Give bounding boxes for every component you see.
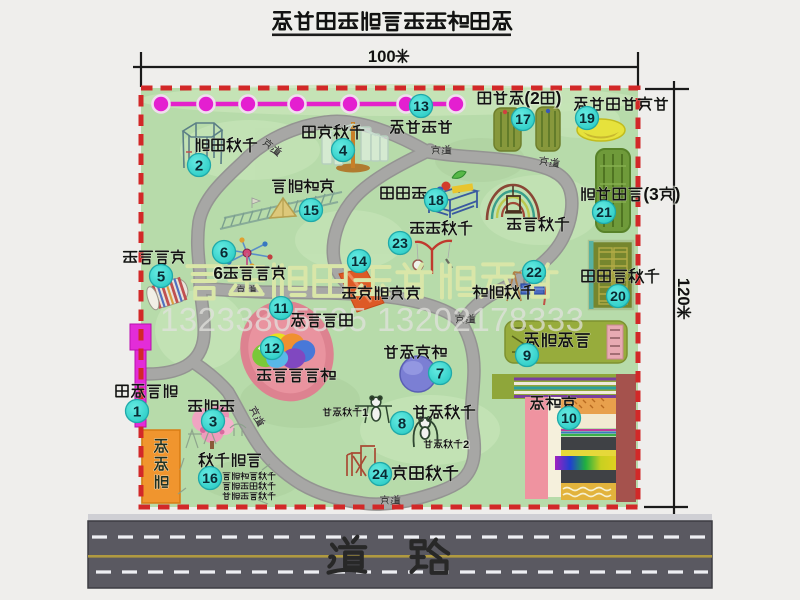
svg-text:6: 6 <box>220 244 228 261</box>
svg-text:12: 12 <box>264 341 280 357</box>
svg-text:(3: (3 <box>643 184 658 204</box>
svg-text:(2: (2 <box>524 88 539 108</box>
svg-text:13233805535 13202178333: 13233805535 13202178333 <box>160 301 584 338</box>
svg-text:2: 2 <box>463 439 469 451</box>
svg-text:20: 20 <box>610 289 626 305</box>
svg-text:6: 6 <box>213 263 223 283</box>
svg-text:4: 4 <box>339 142 348 159</box>
svg-text:): ) <box>675 184 681 204</box>
svg-text:17: 17 <box>515 112 531 128</box>
svg-text:19: 19 <box>579 111 595 127</box>
svg-text:23: 23 <box>392 236 408 252</box>
svg-text:22: 22 <box>526 265 542 281</box>
svg-text:120: 120 <box>674 278 693 306</box>
svg-text:7: 7 <box>436 365 444 382</box>
svg-text:8: 8 <box>398 415 406 432</box>
svg-text:5: 5 <box>157 268 165 285</box>
svg-text:13: 13 <box>413 99 429 115</box>
svg-text:24: 24 <box>372 467 388 483</box>
svg-text:3: 3 <box>209 413 217 430</box>
svg-text:9: 9 <box>523 347 531 364</box>
svg-text:11: 11 <box>274 301 289 317</box>
svg-text:14: 14 <box>351 254 367 270</box>
svg-text:1: 1 <box>362 407 368 419</box>
svg-text:16: 16 <box>202 471 218 487</box>
svg-text:1: 1 <box>133 403 141 420</box>
svg-text:2: 2 <box>195 157 203 174</box>
svg-text:100: 100 <box>368 47 396 66</box>
svg-text:15: 15 <box>303 203 319 219</box>
svg-text:): ) <box>556 88 562 108</box>
svg-text:18: 18 <box>428 193 444 209</box>
svg-text:21: 21 <box>596 205 612 221</box>
svg-text:10: 10 <box>561 411 577 427</box>
